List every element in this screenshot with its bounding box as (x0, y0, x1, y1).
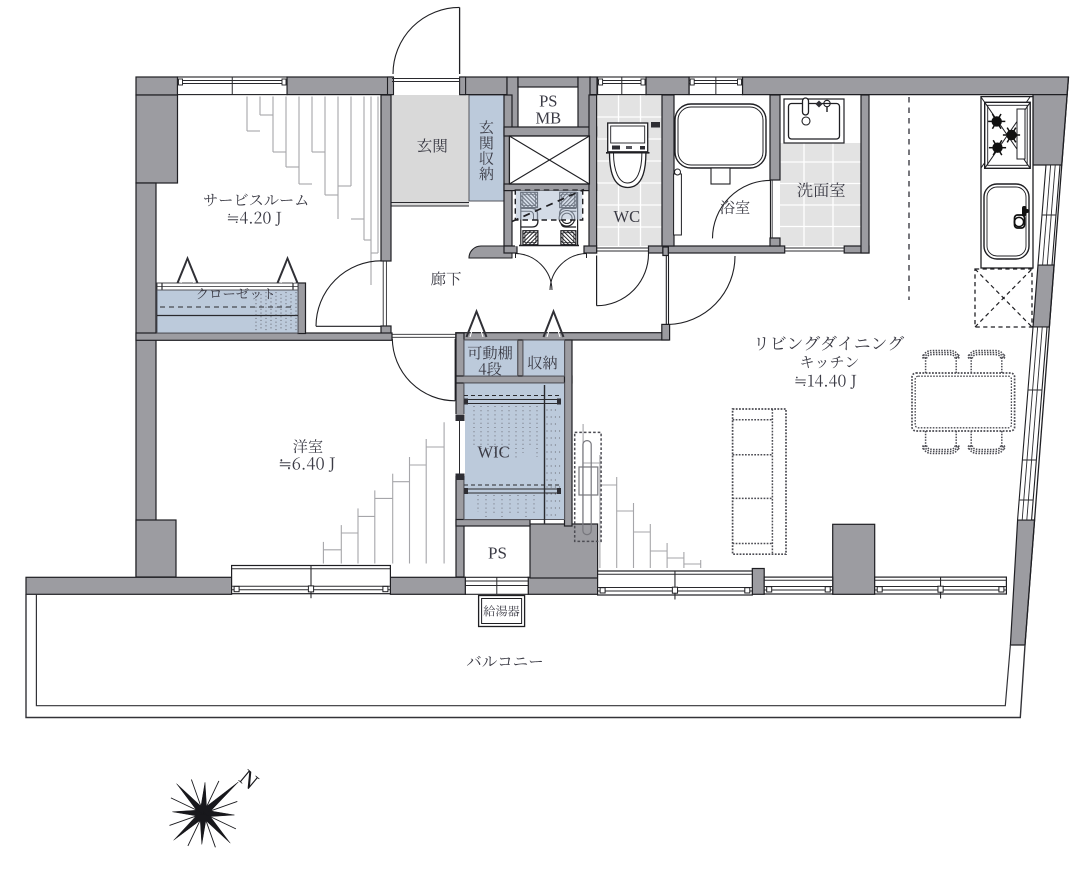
svg-text:WC: WC (614, 207, 641, 226)
svg-text:WIC: WIC (478, 443, 510, 462)
svg-text:PS: PS (539, 91, 557, 110)
svg-text:MB: MB (535, 109, 561, 128)
svg-text:PS: PS (488, 544, 507, 563)
